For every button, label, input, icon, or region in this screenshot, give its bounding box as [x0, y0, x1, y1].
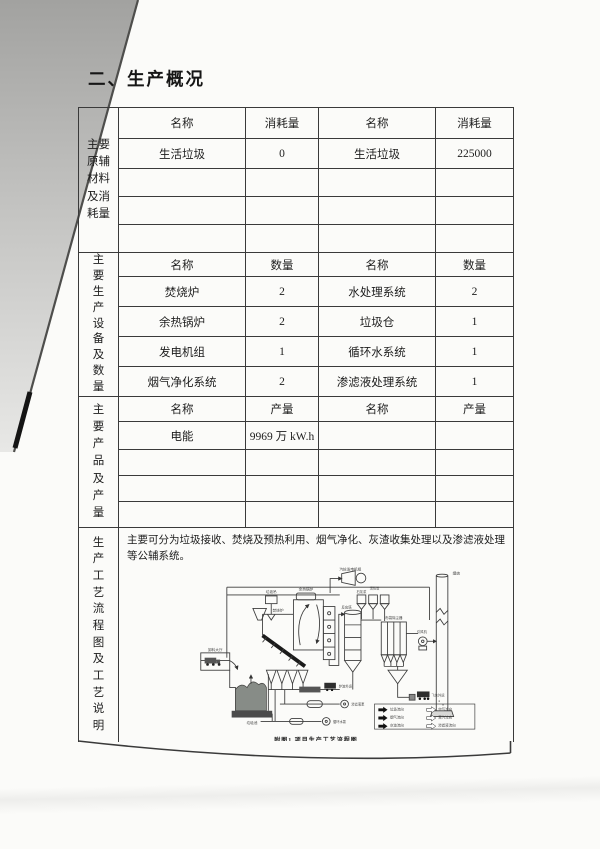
- header-cell: 数量: [436, 253, 514, 277]
- label-incinerator: 焚烧炉: [273, 608, 284, 613]
- table-cell: [119, 225, 246, 253]
- label-slag-truck: 炉渣外运: [339, 684, 353, 689]
- table-cell: 1: [436, 307, 514, 337]
- legend-arrow-outline: [427, 723, 436, 729]
- table-cell: [246, 502, 319, 528]
- table-cell: 烟气净化系统: [119, 367, 246, 397]
- section-label-equipment: 主要生产设备及数量: [79, 253, 119, 397]
- table-cell: [119, 476, 246, 502]
- label-silo-carbon: 活性炭: [370, 586, 381, 591]
- table-cell: [319, 476, 436, 502]
- leachate-pump: [341, 700, 349, 708]
- table-cell: [119, 450, 246, 476]
- label-fan: 引风机: [417, 629, 428, 634]
- legend-entry: 空气流向: [438, 707, 452, 712]
- table-cell: 水处理系统: [319, 277, 436, 307]
- label-chimney: 烟囱: [453, 571, 461, 576]
- table-cell: 生活垃圾: [319, 139, 436, 169]
- table-cell: 余热锅炉: [119, 307, 246, 337]
- table-cell: [319, 502, 436, 528]
- table-cell: [246, 225, 319, 253]
- production-overview-table: 主要原辅材料及消耗量 名称 消耗量 名称 消耗量 生活垃圾 0 生活垃圾 225…: [78, 107, 514, 742]
- table-cell: [246, 197, 319, 225]
- circulating-pump: [322, 718, 330, 726]
- table-cell: 9969 万 kW.h: [246, 422, 319, 450]
- steam-drum: [296, 593, 315, 600]
- table-cell: 渗滤液处理系统: [319, 367, 436, 397]
- header-cell: 名称: [319, 253, 436, 277]
- label-silo-lime: 石灰浆: [357, 589, 368, 594]
- slag-conveyor: [299, 687, 320, 693]
- label-pump-water: 循环水泵: [333, 719, 347, 724]
- legend-entry: 渗滤液流向: [438, 723, 456, 728]
- section-label-process: 生产工艺流程图及工艺说明: [79, 528, 119, 742]
- fly-ash-route: [398, 684, 430, 700]
- label-ash-truck: 飞灰外运: [431, 693, 445, 698]
- table-cell: 2: [436, 277, 514, 307]
- table-cell: 生活垃圾: [119, 139, 246, 169]
- table-cell: 电能: [119, 422, 246, 450]
- process-content-cell: 主要可分为垃圾接收、焚烧及预热利用、烟气净化、灰渣收集处理以及渗滤液处理等公辅系…: [119, 528, 514, 742]
- induced-draft-fan: [406, 634, 436, 650]
- table-cell: [319, 422, 436, 450]
- header-cell: 数量: [246, 253, 319, 277]
- table-bottom-curved-border: [77, 738, 514, 774]
- waste-heat-boiler: [293, 593, 323, 650]
- label-reactor: 反应塔: [341, 605, 352, 610]
- table-cell: 2: [246, 307, 319, 337]
- legend-arrow-solid: [378, 707, 387, 713]
- legend-entry: 蒸汽流向: [438, 715, 452, 720]
- label-boiler: 余热锅炉: [299, 587, 314, 592]
- table-cell: 1: [246, 337, 319, 367]
- section-label-products: 主要产品及产量: [79, 397, 119, 528]
- table-cell: [436, 476, 514, 502]
- header-cell: 产量: [436, 397, 514, 422]
- legend-entry: 烟气流向: [390, 715, 404, 720]
- header-cell: 消耗量: [436, 108, 514, 139]
- table-cell: [246, 169, 319, 197]
- header-cell: 名称: [119, 397, 246, 422]
- table-cell: [119, 197, 246, 225]
- slag-truck-shape: [324, 683, 336, 689]
- waste-truck: [205, 658, 217, 664]
- label-turbine: 汽轮发电机组: [339, 567, 361, 572]
- legend-arrow-solid: [378, 723, 387, 729]
- section-label-materials: 主要原辅材料及消耗量: [79, 108, 119, 253]
- table-cell: [436, 422, 514, 450]
- table-cell: [436, 197, 514, 225]
- ash-truck: [417, 692, 430, 698]
- header-cell: 名称: [319, 397, 436, 422]
- table-cell: 1: [436, 337, 514, 367]
- scan-shadow: [0, 775, 600, 815]
- label-pump-leachate: 渗滤液泵: [351, 702, 365, 707]
- table-cell: [246, 476, 319, 502]
- table-cell: 2: [246, 367, 319, 397]
- table-cell: 2: [246, 277, 319, 307]
- table-cell: [119, 169, 246, 197]
- header-cell: 名称: [119, 253, 246, 277]
- slag-route: [268, 683, 339, 693]
- process-description: 主要可分为垃圾接收、焚烧及预热利用、烟气净化、灰渣收集处理以及渗滤液处理等公辅系…: [127, 533, 507, 565]
- table-cell: 1: [436, 367, 514, 397]
- spray-reactor-tower: [345, 610, 382, 689]
- table-cell: [436, 450, 514, 476]
- table-cell: [436, 225, 514, 253]
- page-title: 二、生产概况: [88, 66, 205, 91]
- process-flow-diagram: 汽轮发电机组 垃圾吊 卸料大厅 垃圾池 焚烧炉 余热锅炉 反应塔 石灰浆 活性炭: [153, 566, 513, 735]
- table-cell: [246, 450, 319, 476]
- legend-entry: 垃圾流向: [390, 707, 404, 712]
- table-cell: 焚烧炉: [119, 277, 246, 307]
- table-cell: [119, 502, 246, 528]
- tipping-hall: [201, 653, 238, 670]
- label-bunker: 垃圾池: [246, 720, 257, 725]
- legend-arrow-solid: [378, 715, 387, 721]
- table-cell: 0: [246, 139, 319, 169]
- table-cell: 发电机组: [119, 337, 246, 367]
- table-cell: [319, 197, 436, 225]
- header-cell: 消耗量: [246, 108, 319, 139]
- header-cell: 名称: [119, 108, 246, 139]
- label-tipping-hall: 卸料大厅: [208, 647, 223, 652]
- table-cell: [319, 450, 436, 476]
- table-cell: [436, 169, 514, 197]
- label-bag-filter: 布袋除尘器: [385, 615, 403, 620]
- waste-bunker: [230, 670, 272, 717]
- table-cell: [436, 502, 514, 528]
- grate: [263, 636, 305, 667]
- header-cell: 名称: [319, 108, 436, 139]
- ash-hopper: [388, 670, 407, 684]
- economizer: [323, 607, 344, 666]
- bag-filter: [381, 622, 407, 684]
- header-cell: 产量: [246, 397, 319, 422]
- table-cell: [319, 225, 436, 253]
- label-crane: 垃圾吊: [266, 589, 277, 594]
- table-cell: 循环水系统: [319, 337, 436, 367]
- table-cell: 垃圾仓: [319, 307, 436, 337]
- table-cell: 225000: [436, 139, 514, 169]
- table-cell: [319, 169, 436, 197]
- legend-entry: 灰渣流向: [390, 723, 404, 728]
